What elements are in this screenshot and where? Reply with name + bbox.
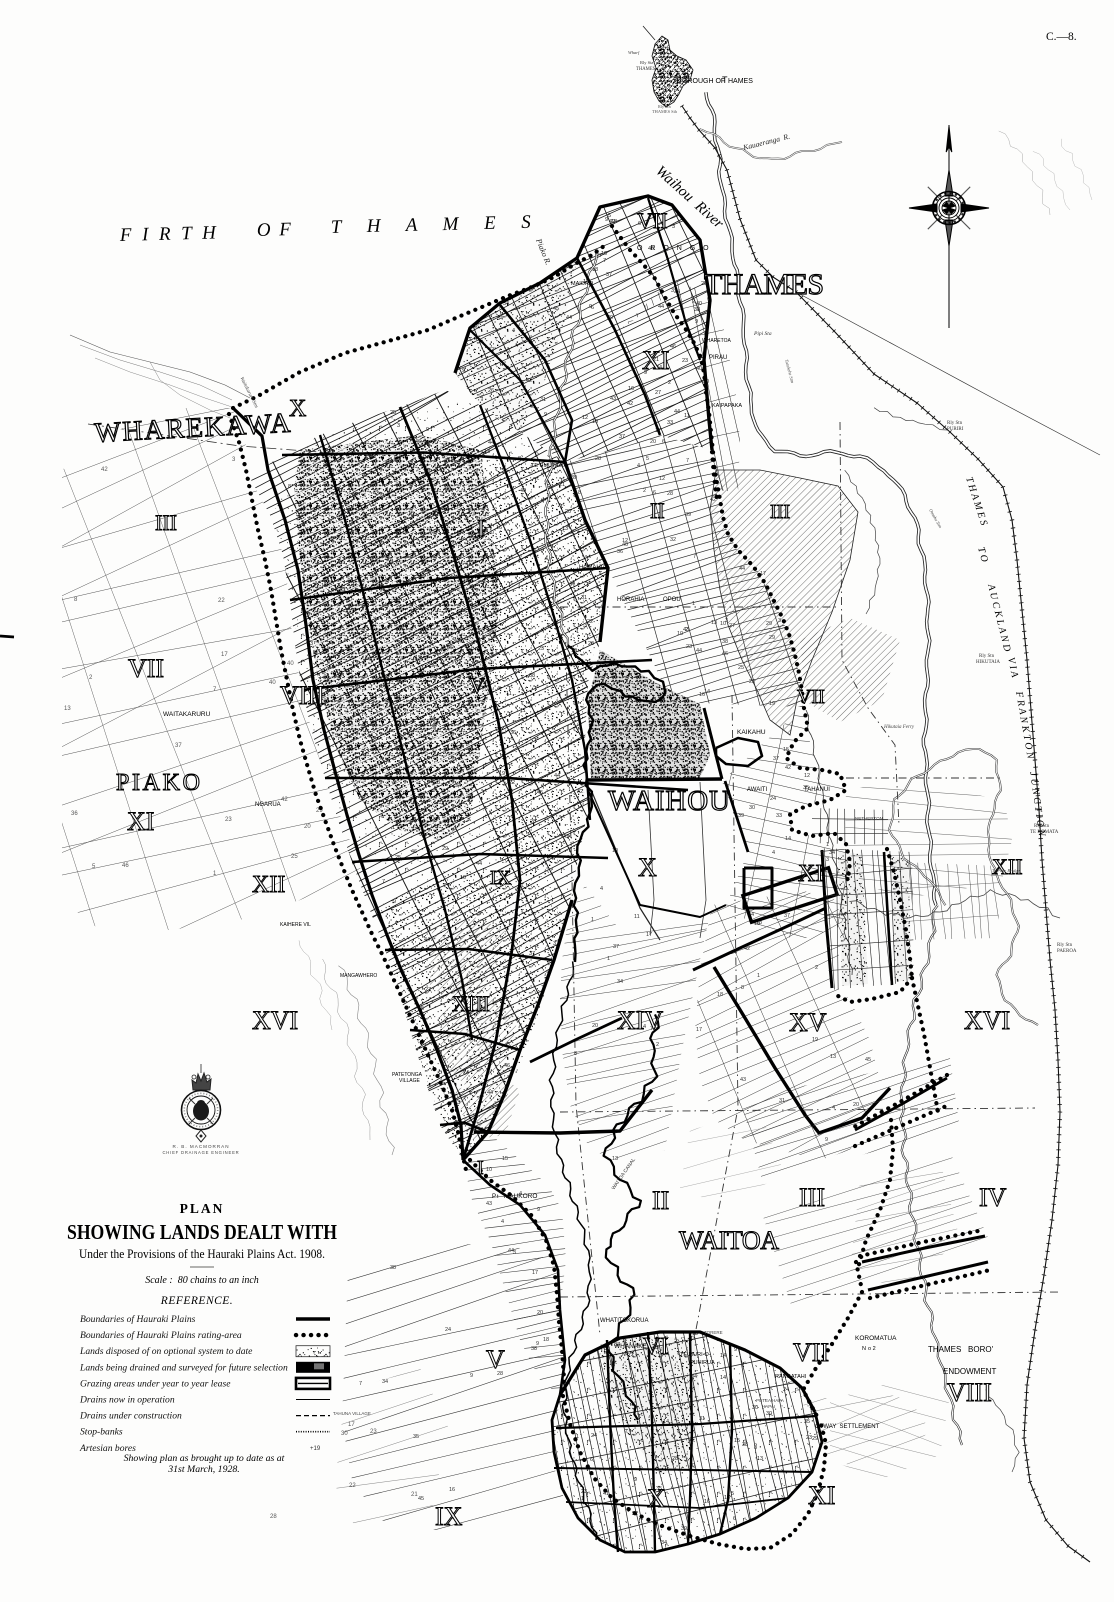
svg-text:2: 2	[507, 349, 510, 355]
svg-text:Showing plan as brought up to: Showing plan as brought up to date as at	[124, 1453, 285, 1464]
svg-text:43: 43	[563, 834, 569, 840]
svg-text:20: 20	[565, 509, 571, 515]
svg-text:TE: TE	[600, 1348, 608, 1354]
svg-text:31: 31	[581, 595, 587, 601]
svg-text:XI: XI	[642, 346, 669, 375]
svg-text:WAITAKARURU: WAITAKARURU	[163, 711, 211, 718]
svg-text:31: 31	[540, 397, 546, 403]
svg-text:13: 13	[830, 1054, 836, 1060]
svg-text:o 2: o 2	[627, 1352, 634, 1358]
svg-text:25: 25	[738, 665, 744, 671]
svg-text:HAMES: HAMES	[728, 78, 753, 85]
svg-text:46: 46	[122, 863, 129, 869]
svg-text:37: 37	[175, 743, 182, 749]
svg-text:44: 44	[696, 648, 702, 654]
svg-text:26: 26	[387, 557, 393, 563]
svg-text:Rly Stn: Rly Stn	[1057, 943, 1073, 948]
svg-text:1: 1	[325, 489, 328, 495]
svg-text:AWAITI: AWAITI	[747, 787, 768, 793]
svg-text:1: 1	[572, 580, 575, 586]
svg-text:VII: VII	[797, 686, 825, 708]
svg-text:N: N	[622, 1352, 626, 1358]
svg-text:RANGATAHI: RANGATAHI	[775, 1374, 807, 1380]
svg-text:17: 17	[348, 1422, 355, 1428]
svg-text:17: 17	[696, 1027, 702, 1033]
svg-text:42: 42	[281, 797, 288, 803]
svg-text:O F: O F	[257, 219, 292, 241]
svg-text:TAHUNA VILLAGE: TAHUNA VILLAGE	[333, 1411, 371, 1416]
svg-text:9: 9	[426, 427, 429, 433]
svg-text:23: 23	[370, 1429, 377, 1435]
svg-text:3: 3	[397, 423, 400, 429]
svg-text:3: 3	[431, 749, 434, 755]
svg-text:34: 34	[382, 1379, 388, 1385]
svg-text:38: 38	[529, 673, 535, 679]
svg-text:24: 24	[591, 1433, 597, 1439]
svg-text:TORERE: TORERE	[704, 1330, 723, 1335]
svg-text:13: 13	[757, 1456, 763, 1462]
svg-text:7: 7	[686, 458, 689, 464]
svg-text:IX: IX	[490, 867, 512, 889]
svg-text:6: 6	[590, 1457, 593, 1463]
svg-text:31: 31	[779, 1098, 785, 1104]
svg-text:28: 28	[530, 819, 536, 825]
svg-text:36: 36	[617, 549, 623, 555]
svg-text:12: 12	[622, 538, 628, 544]
svg-text:15: 15	[415, 655, 421, 661]
svg-text:23: 23	[682, 358, 688, 364]
svg-text:31st March, 1928.: 31st March, 1928.	[167, 1464, 239, 1475]
svg-text:27: 27	[425, 987, 431, 993]
svg-text:+19: +19	[310, 1446, 321, 1452]
svg-text:WHARETOA: WHARETOA	[702, 338, 731, 344]
svg-text:23: 23	[538, 646, 544, 652]
svg-text:40: 40	[287, 661, 294, 667]
svg-text:Lands disposed of on optional: Lands disposed of on optional system to …	[79, 1346, 253, 1357]
svg-text:16: 16	[496, 525, 502, 531]
svg-text:46: 46	[670, 344, 676, 350]
svg-text:7: 7	[603, 258, 606, 264]
svg-text:WAIHOU: WAIHOU	[608, 785, 730, 817]
svg-text:24: 24	[770, 796, 776, 802]
svg-text:13: 13	[711, 620, 717, 626]
svg-text:PLAN: PLAN	[180, 1201, 225, 1216]
svg-text:19: 19	[812, 1037, 818, 1043]
svg-text:11: 11	[520, 708, 526, 714]
svg-text:4: 4	[439, 648, 442, 654]
svg-text:12: 12	[804, 773, 810, 779]
svg-text:Grazing areas under year to ye: Grazing areas under year to year lease	[80, 1378, 231, 1389]
svg-text:Scale : 80 chains to an inch: Scale : 80 chains to an inch	[145, 1275, 259, 1286]
svg-text:OROUGH OF: OROUGH OF	[682, 78, 727, 85]
svg-text:Under the Provisions of the Ha: Under the Provisions of the Hauraki Plai…	[79, 1247, 325, 1261]
svg-text:Drains under construction: Drains under construction	[79, 1411, 182, 1422]
svg-text:4: 4	[772, 850, 775, 856]
svg-text:Te Puke Bridge: Te Puke Bridge	[992, 868, 1020, 873]
svg-text:OTWAY SETTLEMENT: OTWAY SETTLEMENT	[815, 1424, 880, 1430]
svg-text:10: 10	[592, 419, 598, 425]
svg-text:N: N	[862, 1346, 866, 1352]
svg-text:X: X	[647, 1484, 666, 1513]
svg-text:Lands being drained and survey: Lands being drained and surveyed for fut…	[79, 1362, 288, 1373]
svg-text:II: II	[650, 498, 665, 523]
svg-text:39: 39	[738, 813, 744, 819]
svg-text:2: 2	[668, 380, 671, 386]
svg-text:44: 44	[566, 315, 572, 321]
svg-text:7: 7	[568, 848, 571, 854]
svg-text:HORAHIA: HORAHIA	[579, 565, 606, 571]
svg-text:1: 1	[591, 917, 594, 923]
svg-text:10: 10	[601, 251, 607, 257]
svg-text:25: 25	[430, 725, 436, 731]
svg-text:29: 29	[812, 1436, 818, 1442]
svg-text:5: 5	[608, 213, 611, 219]
svg-text:4: 4	[545, 556, 548, 562]
svg-text:45: 45	[418, 1496, 424, 1502]
svg-text:13: 13	[562, 526, 568, 532]
svg-text:4: 4	[497, 686, 500, 692]
svg-text:Stop-banks: Stop-banks	[80, 1427, 123, 1438]
svg-text:35: 35	[804, 1419, 810, 1425]
svg-text:40: 40	[696, 366, 702, 372]
svg-text:20: 20	[534, 515, 540, 521]
svg-text:21: 21	[514, 669, 520, 675]
svg-text:24: 24	[327, 641, 333, 647]
svg-text:29: 29	[442, 846, 448, 852]
svg-text:7: 7	[382, 879, 385, 885]
svg-text:X: X	[289, 396, 306, 422]
svg-text:6: 6	[653, 490, 656, 496]
svg-text:KOROMATUA: KOROMATUA	[855, 1335, 897, 1342]
svg-text:R. B. MACMORRAN: R. B. MACMORRAN	[172, 1144, 229, 1149]
svg-text:KAIHERE VIL: KAIHERE VIL	[280, 922, 311, 928]
svg-text:3: 3	[672, 224, 675, 230]
svg-text:28: 28	[672, 1456, 678, 1462]
svg-text:15: 15	[422, 630, 428, 636]
svg-text:20: 20	[349, 493, 355, 499]
svg-text:10: 10	[346, 745, 352, 751]
svg-text:PIAKO: PIAKO	[116, 770, 200, 796]
svg-text:5: 5	[646, 456, 649, 462]
svg-text:16: 16	[448, 457, 454, 463]
svg-text:1: 1	[607, 956, 610, 962]
svg-text:9: 9	[393, 899, 396, 905]
svg-text:32: 32	[670, 537, 676, 543]
svg-text:14: 14	[720, 1375, 726, 1381]
svg-text:5: 5	[313, 650, 316, 656]
svg-text:PURIRI: PURIRI	[947, 427, 964, 432]
svg-text:5: 5	[439, 1070, 442, 1076]
svg-text:11: 11	[407, 621, 413, 627]
svg-text:WAITOA: WAITOA	[679, 1226, 779, 1255]
svg-text:38: 38	[722, 639, 728, 645]
svg-text:1: 1	[757, 973, 760, 979]
svg-text:12: 12	[368, 700, 374, 706]
svg-text:18: 18	[543, 1337, 549, 1343]
svg-text:9: 9	[634, 1477, 637, 1483]
svg-text:29: 29	[394, 695, 400, 701]
svg-text:PUHIRUA: PUHIRUA	[690, 1360, 715, 1366]
svg-text:21: 21	[411, 1492, 418, 1498]
svg-text:VIII: VIII	[280, 681, 325, 710]
svg-text:2: 2	[815, 965, 818, 971]
svg-text:Boundaries of Hauraki Plains: Boundaries of Hauraki Plains	[80, 1314, 196, 1325]
svg-text:9: 9	[478, 911, 481, 917]
svg-text:23: 23	[686, 644, 692, 650]
svg-text:VII: VII	[637, 208, 668, 233]
svg-text:7: 7	[359, 1381, 362, 1387]
svg-text:CHIEF DRAINAGE ENGINEER: CHIEF DRAINAGE ENGINEER	[162, 1150, 239, 1155]
svg-text:28: 28	[270, 1514, 277, 1520]
svg-text:1: 1	[692, 601, 695, 607]
svg-text:Drains now in operation: Drains now in operation	[79, 1395, 175, 1406]
svg-text:44: 44	[476, 861, 482, 867]
svg-text:HAPAI: HAPAI	[762, 1404, 775, 1409]
svg-text:42: 42	[526, 378, 532, 384]
svg-text:8: 8	[754, 1445, 757, 1451]
svg-text:34: 34	[497, 316, 503, 322]
svg-text:30: 30	[766, 1411, 772, 1417]
svg-text:VIII: VIII	[947, 1378, 992, 1407]
svg-text:17: 17	[221, 652, 228, 658]
svg-text:17: 17	[532, 1270, 538, 1276]
svg-text:V: V	[486, 1345, 505, 1374]
svg-text:XVI: XVI	[964, 1006, 1010, 1035]
svg-text:11: 11	[506, 691, 512, 697]
svg-text:VILLAGE: VILLAGE	[399, 1078, 421, 1084]
svg-text:5: 5	[731, 1491, 734, 1497]
svg-text:45: 45	[865, 1057, 871, 1063]
svg-text:o 2: o 2	[868, 1346, 876, 1352]
svg-text:Rly Sta: Rly Sta	[640, 60, 653, 65]
svg-text:TE UMUTAWA: TE UMUTAWA	[531, 463, 567, 469]
svg-text:9: 9	[537, 1207, 540, 1213]
svg-text:20: 20	[853, 1102, 859, 1108]
svg-text:34: 34	[429, 716, 435, 722]
svg-text:30: 30	[749, 805, 755, 811]
svg-text:4: 4	[480, 395, 483, 401]
svg-text:33: 33	[667, 420, 673, 426]
svg-text:26: 26	[488, 388, 494, 394]
svg-text:10: 10	[486, 1167, 492, 1173]
svg-text:13: 13	[484, 449, 490, 455]
svg-text:I: I	[477, 1157, 484, 1179]
svg-text:37: 37	[453, 639, 459, 645]
svg-text:15: 15	[474, 503, 480, 509]
svg-text:MAIORO: MAIORO	[571, 281, 594, 287]
svg-text:29: 29	[428, 663, 434, 669]
svg-text:4: 4	[600, 886, 603, 892]
svg-text:6: 6	[591, 305, 594, 311]
svg-text:25: 25	[291, 854, 298, 860]
svg-text:45: 45	[537, 790, 543, 796]
svg-text:O R O N G O: O R O N G O	[637, 245, 712, 252]
svg-text:9: 9	[462, 368, 465, 374]
svg-text:22: 22	[218, 598, 225, 604]
svg-text:34: 34	[617, 979, 623, 985]
svg-text:IV: IV	[979, 1183, 1007, 1212]
svg-text:11: 11	[684, 413, 690, 419]
svg-text:45: 45	[298, 515, 304, 521]
svg-text:XIV: XIV	[617, 1006, 663, 1035]
svg-text:OPOU: OPOU	[663, 597, 681, 603]
svg-text:22: 22	[587, 619, 593, 625]
svg-text:KAIPAPAKA: KAIPAPAKA	[712, 403, 742, 409]
svg-text:43: 43	[740, 1077, 746, 1083]
svg-text:15: 15	[408, 511, 414, 517]
svg-text:43: 43	[373, 491, 379, 497]
svg-text:1: 1	[463, 487, 466, 493]
svg-text:27: 27	[655, 390, 661, 396]
svg-text:46: 46	[722, 651, 728, 657]
svg-text:C.—8.: C.—8.	[1046, 31, 1077, 43]
svg-text:38: 38	[487, 630, 493, 636]
svg-text:III: III	[155, 510, 177, 535]
svg-text:1: 1	[392, 825, 395, 831]
svg-text:36: 36	[447, 645, 453, 651]
svg-text:16: 16	[449, 1487, 455, 1493]
svg-text:10: 10	[460, 875, 466, 881]
svg-text:XIII: XIII	[452, 991, 490, 1016]
svg-text:40: 40	[520, 488, 526, 494]
svg-text:TAHANUI: TAHANUI	[804, 787, 830, 793]
svg-text:3: 3	[366, 563, 369, 569]
svg-text:37: 37	[773, 756, 779, 762]
svg-text:PAEROA: PAEROA	[1057, 949, 1077, 954]
svg-text:NGARUA: NGARUA	[255, 802, 281, 808]
svg-text:XVI: XVI	[252, 1006, 298, 1035]
svg-text:33: 33	[776, 813, 782, 819]
svg-text:34: 34	[661, 1540, 667, 1546]
svg-text:VII: VII	[128, 654, 164, 683]
svg-text:Hikutaia Ferry: Hikutaia Ferry	[883, 725, 915, 730]
svg-text:XV: XV	[789, 1008, 827, 1037]
svg-text:P: P	[492, 1194, 496, 1200]
svg-text:21: 21	[559, 482, 565, 488]
svg-text:42: 42	[577, 789, 583, 795]
svg-text:X: X	[638, 853, 657, 882]
svg-text:31: 31	[335, 669, 341, 675]
svg-text:2: 2	[643, 488, 646, 494]
svg-text:HIKUTAIA: HIKUTAIA	[976, 660, 1000, 665]
svg-text:7: 7	[365, 655, 368, 661]
svg-text:22: 22	[349, 1483, 356, 1489]
svg-text:41: 41	[465, 561, 471, 567]
svg-text:8: 8	[288, 484, 291, 490]
svg-text:37: 37	[784, 913, 790, 919]
svg-text:9: 9	[694, 1471, 697, 1477]
svg-text:8: 8	[574, 1051, 577, 1057]
svg-text:HORAHIA: HORAHIA	[617, 597, 644, 603]
svg-text:25: 25	[390, 410, 396, 416]
svg-text:7: 7	[693, 554, 696, 560]
svg-text:20: 20	[650, 439, 656, 445]
svg-text:4: 4	[501, 1219, 504, 1225]
svg-text:1: 1	[576, 629, 579, 635]
svg-text:ENDOWMENT: ENDOWMENT	[943, 1367, 996, 1376]
svg-text:XII: XII	[992, 854, 1023, 879]
svg-text:2: 2	[656, 1042, 659, 1048]
svg-text:5: 5	[443, 697, 446, 703]
svg-text:20: 20	[537, 1310, 543, 1316]
svg-text:43: 43	[486, 1201, 492, 1207]
svg-text:XI: XI	[798, 861, 823, 887]
svg-text:PUTEA HAPA: PUTEA HAPA	[756, 1398, 784, 1403]
svg-text:13: 13	[64, 706, 71, 712]
svg-text:TE MURI-O-: TE MURI-O-	[680, 1352, 711, 1358]
svg-text:8: 8	[741, 985, 744, 991]
svg-text:19: 19	[341, 728, 347, 734]
svg-text:30: 30	[471, 569, 477, 575]
svg-text:42: 42	[362, 473, 368, 479]
svg-text:PIRAU: PIRAU	[709, 355, 727, 361]
svg-text:I: I	[477, 516, 485, 542]
svg-text:MANGAWHERO: MANGAWHERO	[340, 973, 377, 979]
svg-text:34: 34	[455, 783, 461, 789]
svg-text:III: III	[770, 501, 790, 523]
svg-text:28: 28	[667, 491, 673, 497]
svg-text:8: 8	[437, 780, 440, 786]
svg-text:45: 45	[553, 306, 559, 312]
svg-text:14: 14	[720, 1353, 726, 1359]
svg-text:42: 42	[101, 467, 108, 473]
svg-text:37: 37	[619, 434, 625, 440]
svg-text:17: 17	[646, 932, 652, 938]
svg-text:23: 23	[225, 817, 232, 823]
svg-text:44: 44	[554, 773, 560, 779]
svg-text:42: 42	[627, 401, 633, 407]
svg-text:38: 38	[742, 1442, 748, 1448]
svg-text:12: 12	[659, 476, 665, 482]
svg-text:13: 13	[321, 583, 327, 589]
svg-text:3: 3	[584, 623, 587, 629]
svg-text:7: 7	[460, 792, 463, 798]
svg-text:IX: IX	[435, 1502, 463, 1531]
svg-text:III: III	[799, 1183, 825, 1212]
svg-text:6: 6	[733, 1516, 736, 1522]
svg-text:37: 37	[613, 944, 619, 950]
svg-text:SHOWING LANDS DEALT WITH: SHOWING LANDS DEALT WITH	[67, 1220, 337, 1244]
svg-text:THAMES: THAMES	[704, 268, 824, 301]
svg-text:31: 31	[699, 1416, 705, 1422]
svg-text:13: 13	[612, 1156, 618, 1162]
svg-text:44: 44	[318, 617, 324, 623]
svg-text:THAMES BORO': THAMES BORO'	[928, 1345, 994, 1354]
svg-text:44: 44	[424, 937, 430, 943]
svg-text:46: 46	[411, 849, 417, 855]
svg-text:V: V	[469, 673, 485, 698]
svg-text:3: 3	[513, 1250, 516, 1256]
svg-text:Rly Stn: Rly Stn	[979, 654, 995, 659]
svg-text:40: 40	[367, 734, 373, 740]
svg-text:30: 30	[752, 1405, 758, 1411]
svg-text:5: 5	[482, 635, 485, 641]
svg-text:24: 24	[783, 1387, 789, 1393]
svg-text:40: 40	[269, 680, 276, 686]
svg-text:19: 19	[420, 734, 426, 740]
svg-text:27: 27	[455, 660, 461, 666]
svg-text:THAMES Sth: THAMES Sth	[652, 109, 678, 114]
svg-text:20: 20	[304, 824, 311, 830]
svg-text:39: 39	[685, 512, 691, 518]
svg-text:37: 37	[606, 272, 612, 278]
svg-text:18: 18	[717, 992, 723, 998]
svg-text:6: 6	[662, 439, 665, 445]
svg-text:43: 43	[610, 396, 616, 402]
svg-text:12: 12	[582, 415, 588, 421]
svg-text:44: 44	[401, 624, 407, 630]
svg-text:Boundaries of Hauraki Plains r: Boundaries of Hauraki Plains rating-area	[80, 1330, 242, 1341]
